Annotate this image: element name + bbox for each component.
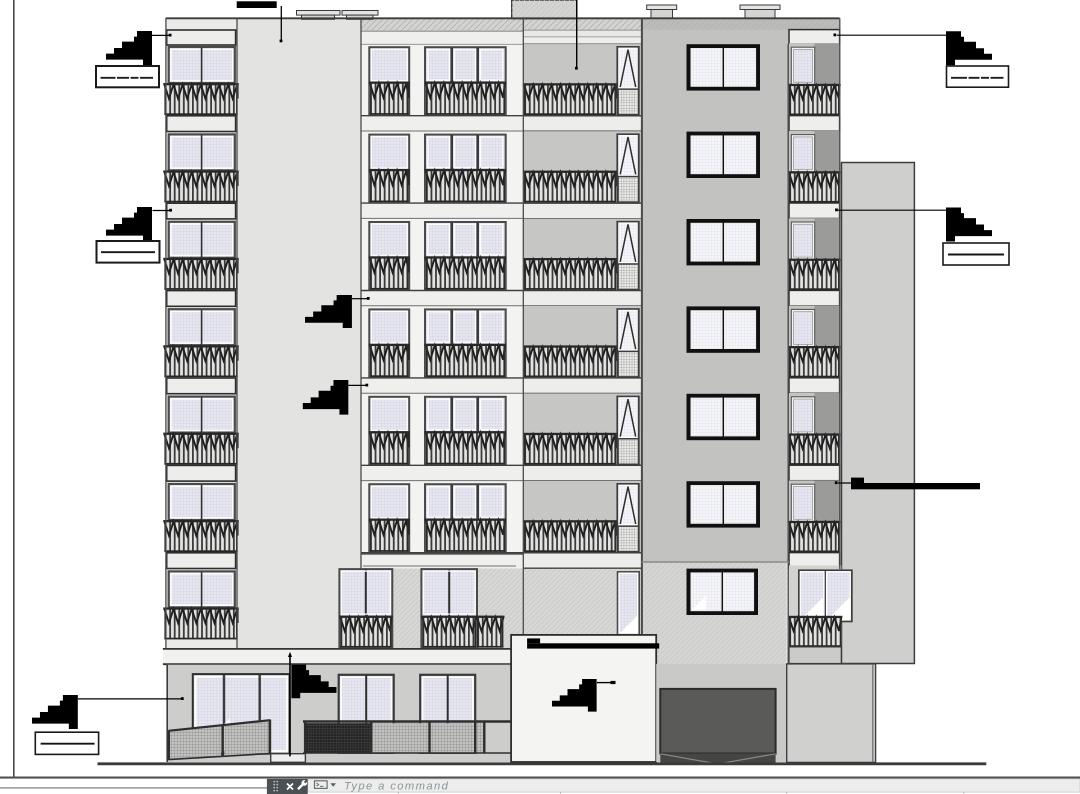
svg-text:Type a command: Type a command xyxy=(344,780,449,792)
